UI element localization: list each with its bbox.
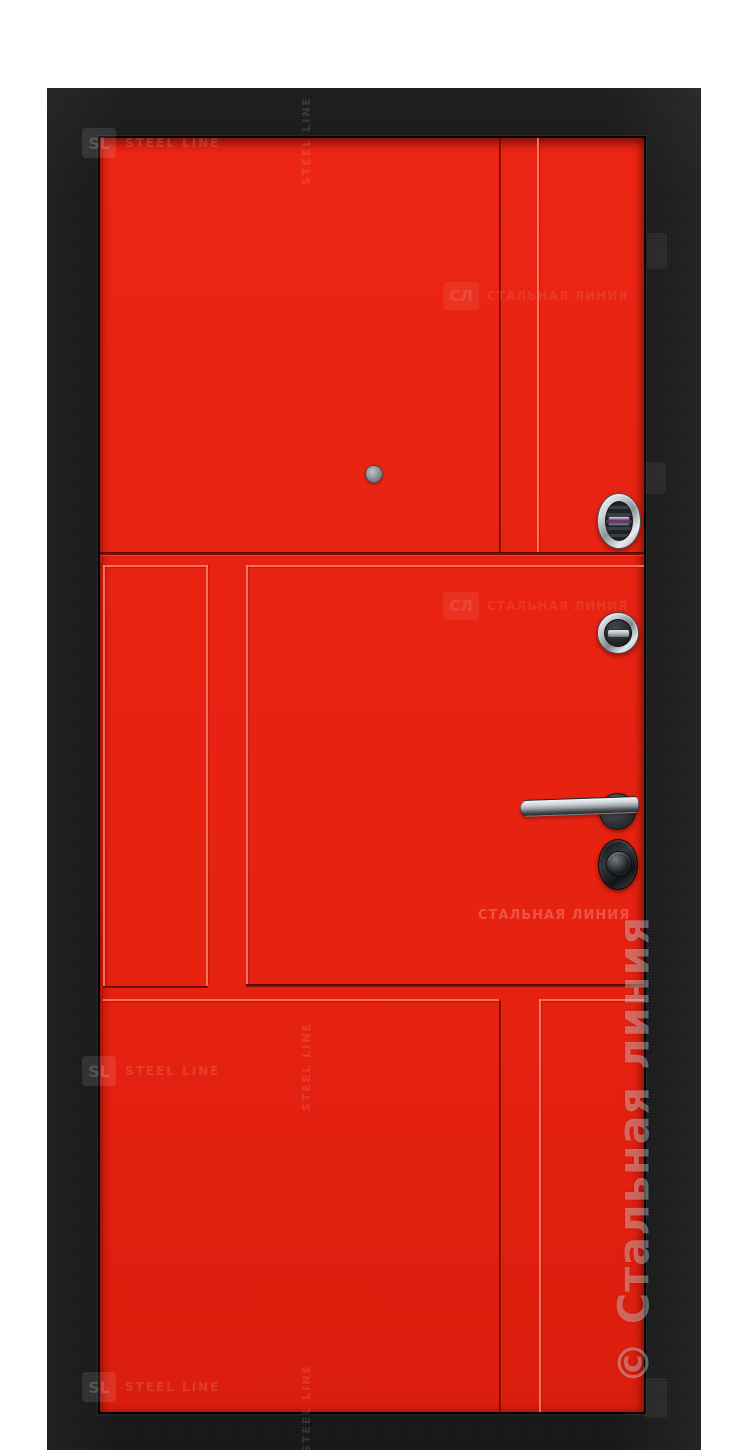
thumbturn-escutcheon-dark <box>598 839 638 890</box>
groove-horizontal-lower <box>246 984 644 987</box>
panel-left-outline-left <box>103 565 105 986</box>
door-frame <box>47 88 701 1450</box>
panel-bottom-outline-top-left <box>103 999 501 1001</box>
groove-vertical-bottom-dark <box>499 999 501 1412</box>
door-leaf <box>100 138 644 1412</box>
groove-vertical-top-dark <box>499 138 501 553</box>
peephole <box>365 465 383 483</box>
panel-left-outline-bottom <box>103 986 208 988</box>
thumbturn-knob <box>606 851 632 877</box>
cylinder-escutcheon-round <box>597 612 639 654</box>
keyhole-slide <box>608 516 630 526</box>
groove-horizontal-upper-highlight <box>100 555 644 556</box>
panel-bottom-outline-top-right <box>539 999 644 1001</box>
cylinder-thumb-slot <box>607 629 630 638</box>
panel-center-outline-top <box>246 565 644 567</box>
keyhole-escutcheon-oval <box>597 493 641 549</box>
panel-left-outline-right <box>206 565 208 986</box>
panel-left-outline-top <box>103 565 208 567</box>
door-product-photo: © Стальная линия SL STEEL LINE SL STEEL … <box>0 0 744 1450</box>
groove-vertical-bottom-light <box>539 999 541 1412</box>
groove-vertical-top-light <box>537 138 539 553</box>
panel-center-outline-left <box>246 565 248 984</box>
